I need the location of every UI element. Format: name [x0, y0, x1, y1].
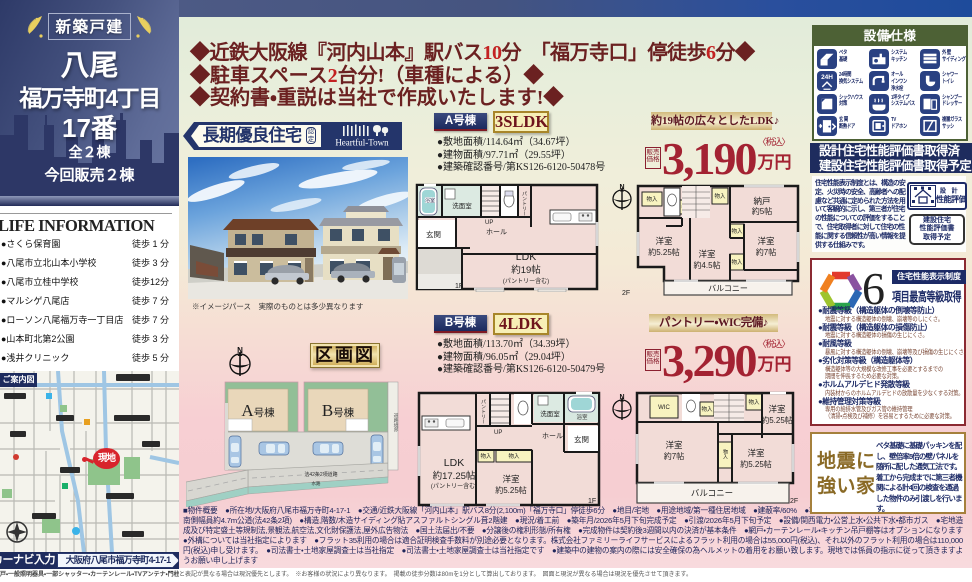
svg-text:納戸: 納戸	[753, 196, 770, 206]
svg-text:玄関: 玄関	[426, 229, 441, 239]
svg-text:約5帖: 約5帖	[752, 206, 772, 216]
svg-text:水路: 水路	[312, 480, 321, 487]
svg-text:約5.25帖: 約5.25帖	[740, 459, 772, 469]
svg-text:物入: 物入	[646, 195, 658, 203]
svg-text:(パントリー含む): (パントリー含む)	[431, 483, 477, 490]
svg-text:バルコニー: バルコニー	[708, 284, 748, 293]
svg-text:パントリー: パントリー	[480, 399, 486, 424]
svg-text:浴室: 浴室	[576, 413, 588, 421]
svg-text:洋室: 洋室	[655, 236, 673, 246]
svg-text:洋室: 洋室	[502, 474, 520, 484]
svg-text:洋室: 洋室	[747, 448, 765, 458]
svg-text:物入: 物入	[722, 448, 728, 460]
svg-text:約5.25帖: 約5.25帖	[761, 415, 793, 425]
svg-text:(パントリー含む): (パントリー含む)	[503, 278, 549, 285]
svg-text:洋室: 洋室	[768, 404, 786, 414]
svg-text:UP: UP	[485, 220, 493, 226]
svg-text:物入: 物入	[714, 192, 726, 200]
svg-text:洋室: 洋室	[665, 440, 683, 450]
svg-text:玄関: 玄関	[574, 434, 589, 444]
svg-text:約5.25帖: 約5.25帖	[495, 485, 527, 495]
svg-text:洋室: 洋室	[757, 236, 775, 246]
svg-text:洗面室: 洗面室	[452, 201, 472, 210]
svg-text:約7帖: 約7帖	[756, 247, 776, 257]
svg-text:ホール: ホール	[486, 228, 507, 236]
svg-text:LDK: LDK	[516, 251, 536, 263]
svg-text:物入: 物入	[748, 398, 760, 406]
svg-text:洋室: 洋室	[698, 249, 716, 259]
svg-text:約19帖: 約19帖	[511, 264, 541, 276]
svg-text:バルコニー: バルコニー	[691, 488, 733, 498]
svg-text:物入: 物入	[480, 452, 492, 460]
svg-text:ホール: ホール	[542, 432, 563, 440]
svg-text:洗面室: 洗面室	[540, 409, 560, 418]
svg-text:約5.25帖: 約5.25帖	[648, 247, 680, 257]
svg-text:道路境界: 道路境界	[393, 412, 398, 433]
svg-text:LDK: LDK	[444, 457, 464, 469]
svg-text:浴室: 浴室	[425, 197, 435, 204]
svg-text:約7帖: 約7帖	[664, 451, 684, 461]
svg-text:約17.25帖: 約17.25帖	[433, 470, 476, 482]
svg-text:物入: 物入	[508, 452, 520, 460]
svg-text:Heartful-Town: Heartful-Town	[335, 138, 389, 148]
svg-text:物入: 物入	[731, 258, 743, 266]
svg-text:WIC: WIC	[658, 405, 670, 411]
svg-text:物入: 物入	[731, 227, 743, 235]
svg-text:パントリー: パントリー	[521, 191, 527, 216]
svg-text:物入: 物入	[701, 405, 713, 413]
svg-text:約4.5帖: 約4.5帖	[693, 260, 720, 270]
svg-text:UP: UP	[494, 430, 502, 436]
svg-text:法42条2項道路: 法42条2項道路	[304, 471, 337, 478]
svg-text:24H: 24H	[821, 75, 833, 82]
